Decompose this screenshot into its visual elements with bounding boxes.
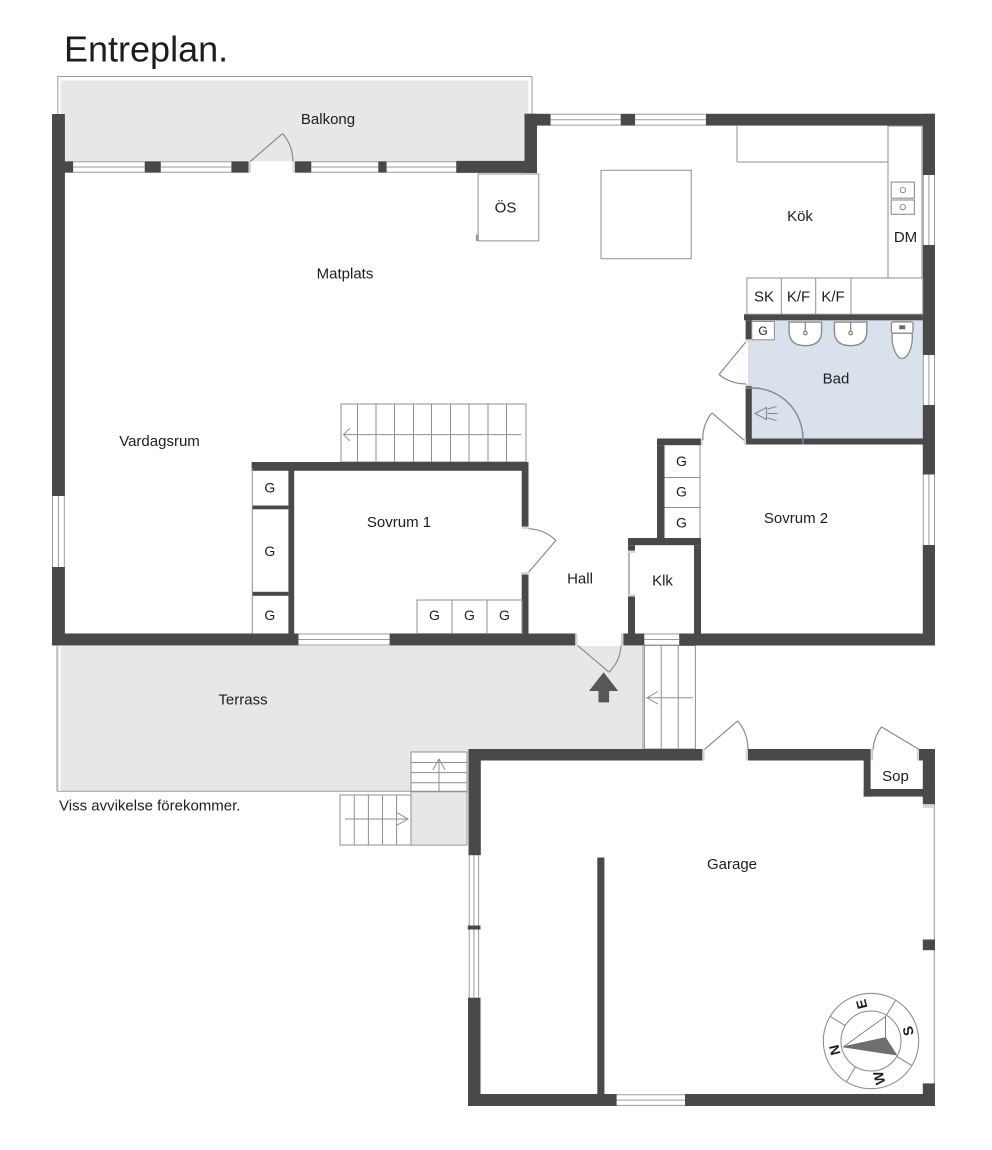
svg-text:Sovrum 1: Sovrum 1 (367, 514, 431, 531)
svg-text:S: S (899, 1025, 917, 1038)
svg-text:G: G (676, 453, 687, 469)
svg-text:N: N (826, 1043, 844, 1057)
svg-text:G: G (264, 607, 275, 623)
svg-text:Hall: Hall (567, 571, 593, 588)
svg-text:Viss avvikelse förekommer.: Viss avvikelse förekommer. (59, 798, 240, 815)
svg-text:Matplats: Matplats (317, 266, 374, 283)
svg-text:SK: SK (754, 289, 774, 306)
svg-text:Sovrum 2: Sovrum 2 (764, 510, 828, 527)
svg-text:K/F: K/F (821, 289, 844, 306)
svg-text:E: E (853, 998, 871, 1011)
svg-text:DM: DM (894, 229, 917, 246)
svg-text:K/F: K/F (787, 289, 810, 306)
svg-text:Terrass: Terrass (218, 692, 267, 709)
svg-text:G: G (676, 515, 687, 531)
svg-text:G: G (464, 607, 475, 623)
svg-text:G: G (429, 607, 440, 623)
svg-text:Vardagsrum: Vardagsrum (119, 433, 200, 450)
svg-text:Sop: Sop (882, 768, 909, 785)
svg-text:Entreplan.: Entreplan. (64, 29, 228, 70)
svg-text:G: G (676, 484, 687, 500)
svg-text:G: G (499, 607, 510, 623)
svg-text:Garage: Garage (707, 856, 757, 873)
svg-text:G: G (264, 543, 275, 559)
svg-text:Balkong: Balkong (301, 111, 355, 128)
svg-text:ÖS: ÖS (495, 199, 517, 217)
svg-text:Kök: Kök (787, 208, 813, 225)
svg-text:Bad: Bad (823, 371, 850, 388)
svg-text:Klk: Klk (652, 573, 673, 590)
svg-text:G: G (758, 324, 767, 338)
svg-text:G: G (264, 480, 275, 496)
